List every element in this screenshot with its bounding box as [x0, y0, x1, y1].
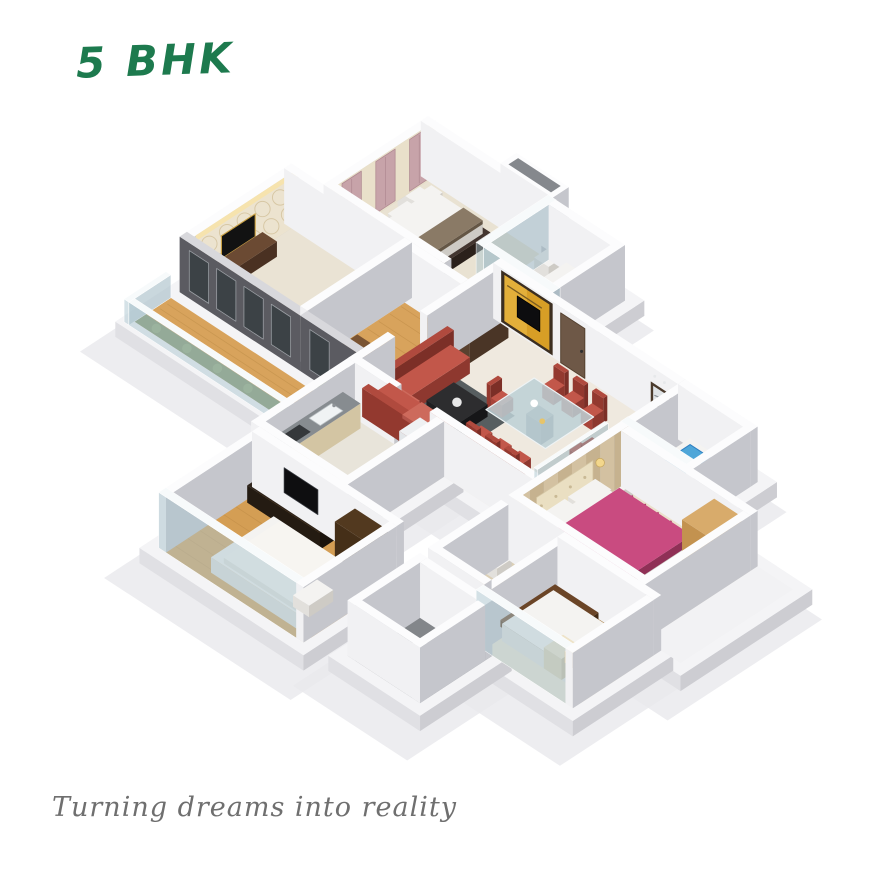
tagline: Turning dreams into reality: [52, 792, 457, 823]
floorplan-scene: [80, 116, 822, 766]
page-title: 5 BHK: [75, 33, 235, 88]
page: { "page": { "background": "#ffffff" }, "…: [0, 0, 895, 892]
floorplan-3d-render: [0, 0, 895, 892]
floorplan-svg: [0, 0, 895, 892]
